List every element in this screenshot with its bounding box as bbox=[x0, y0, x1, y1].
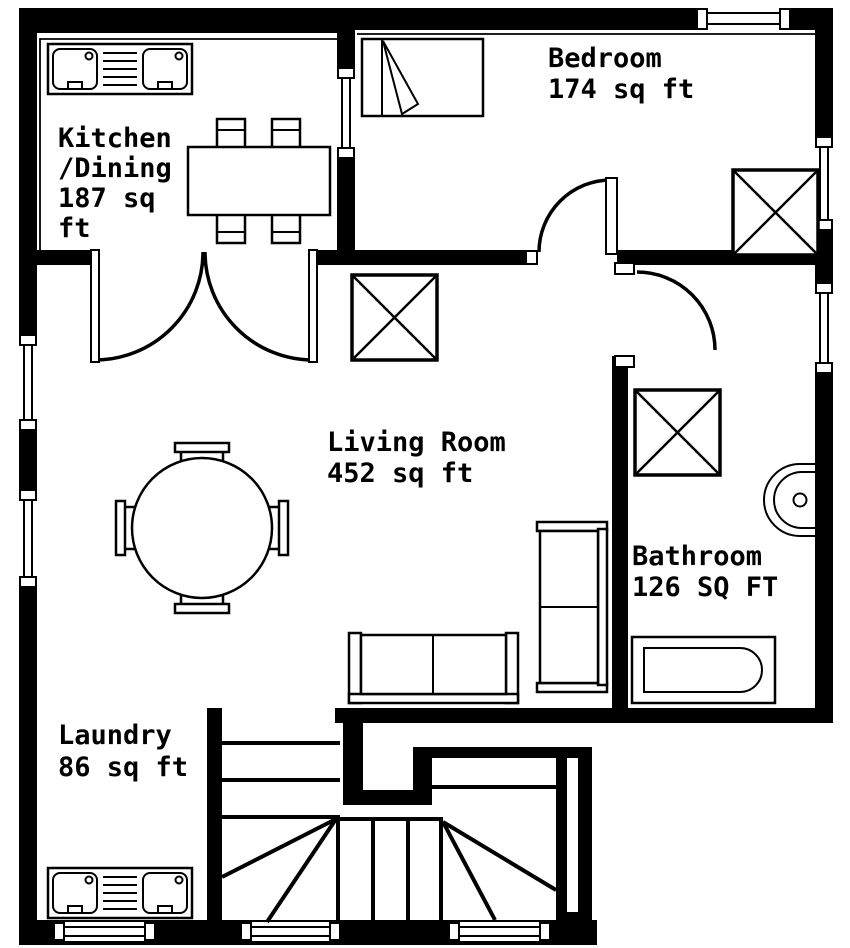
door-arc bbox=[637, 272, 715, 350]
window-bottom-stairs-left bbox=[240, 922, 341, 941]
round-table bbox=[132, 458, 272, 598]
floor-plan: Kitchen /Dining 187 sq ft Bedroom 174 sq… bbox=[0, 0, 850, 948]
round-table-set bbox=[116, 443, 288, 613]
bathroom-label-line1: Bathroom bbox=[632, 541, 762, 572]
wall-living-bathroom-divider bbox=[612, 356, 628, 723]
sofa-horizontal bbox=[349, 633, 518, 703]
sofa-back bbox=[349, 694, 518, 703]
stair-core-right bbox=[413, 747, 432, 805]
wall-mid-center bbox=[309, 250, 527, 265]
bedroom-label: Bedroom 174 sq ft bbox=[548, 43, 694, 105]
sofa-back bbox=[598, 529, 607, 685]
living-crossed-box bbox=[352, 275, 437, 360]
door-jamb bbox=[526, 251, 537, 264]
wall-laundry-stairs-divider bbox=[207, 708, 222, 945]
window-bedroom-top bbox=[696, 8, 791, 30]
kitchen-label-line3: 187 sq bbox=[58, 183, 156, 214]
sofa-arm bbox=[537, 683, 607, 692]
dining-chair bbox=[217, 119, 245, 148]
door-leaf-right bbox=[309, 250, 317, 362]
dining-chair bbox=[217, 214, 245, 243]
sofa-arm bbox=[506, 633, 518, 703]
wall-stairwell-top bbox=[413, 747, 592, 758]
bedroom-crossed-box bbox=[733, 170, 818, 255]
floor-plan-drawing: Kitchen /Dining 187 sq ft Bedroom 174 sq… bbox=[0, 0, 850, 948]
laundry-label-line2: 86 sq ft bbox=[58, 752, 188, 783]
sofa-arm bbox=[349, 633, 361, 703]
sofa-vertical bbox=[537, 522, 607, 692]
door-arc bbox=[539, 180, 611, 252]
wall-left bbox=[19, 8, 37, 945]
bathroom-label-line2: 126 SQ FT bbox=[632, 572, 778, 603]
bedroom-label-line2: 174 sq ft bbox=[548, 74, 694, 105]
bathroom-basin bbox=[764, 464, 816, 536]
staircase bbox=[222, 743, 556, 922]
bathtub bbox=[632, 637, 775, 703]
window-bottom-stairs-right bbox=[448, 922, 551, 941]
window-left-upper bbox=[19, 335, 37, 430]
kitchen-double-door bbox=[91, 250, 317, 362]
bathroom-label: Bathroom 126 SQ FT bbox=[632, 541, 778, 603]
door-arc-left bbox=[95, 252, 203, 360]
window-kitchen-bedroom-divider bbox=[337, 68, 355, 158]
bedroom-door bbox=[526, 178, 617, 264]
drain bbox=[794, 494, 807, 507]
bathroom-crossed-box bbox=[635, 390, 720, 475]
dining-chair bbox=[272, 214, 300, 243]
kitchen-label: Kitchen /Dining 187 sq ft bbox=[58, 123, 172, 244]
wall-kitchen-top bbox=[19, 8, 355, 33]
dining-table bbox=[188, 147, 330, 215]
kitchen-label-line4: ft bbox=[58, 213, 91, 244]
bed bbox=[362, 39, 483, 116]
door-leaf-left bbox=[91, 250, 99, 362]
dining-set bbox=[188, 119, 330, 243]
sofa-arm bbox=[537, 522, 607, 531]
kitchen-sink-unit bbox=[48, 44, 192, 94]
living-label-line1: Living Room bbox=[327, 427, 506, 458]
laundry-sink-unit bbox=[48, 868, 192, 918]
window-bottom-laundry bbox=[53, 922, 156, 941]
living-room-label: Living Room 452 sq ft bbox=[327, 427, 506, 489]
wall-stairs-bathroom-bottom bbox=[335, 708, 833, 723]
living-label-line2: 452 sq ft bbox=[327, 458, 473, 489]
door-leaf bbox=[606, 178, 617, 254]
wall-stairs-right-channel bbox=[567, 758, 578, 912]
kitchen-label-line2: /Dining bbox=[58, 153, 172, 184]
laundry-label-line1: Laundry bbox=[58, 720, 172, 751]
bedroom-label-line1: Bedroom bbox=[548, 43, 662, 74]
wall-mid-west bbox=[19, 250, 98, 265]
laundry-label: Laundry 86 sq ft bbox=[58, 720, 188, 783]
bathroom-door bbox=[615, 263, 715, 367]
dining-chair bbox=[272, 119, 300, 148]
window-bathroom-right bbox=[815, 283, 833, 373]
kitchen-label-line1: Kitchen bbox=[58, 123, 172, 154]
door-jamb-top bbox=[615, 263, 634, 274]
door-arc-right bbox=[205, 252, 313, 360]
window-left-lower bbox=[19, 490, 37, 587]
door-jamb-bottom bbox=[615, 356, 634, 367]
